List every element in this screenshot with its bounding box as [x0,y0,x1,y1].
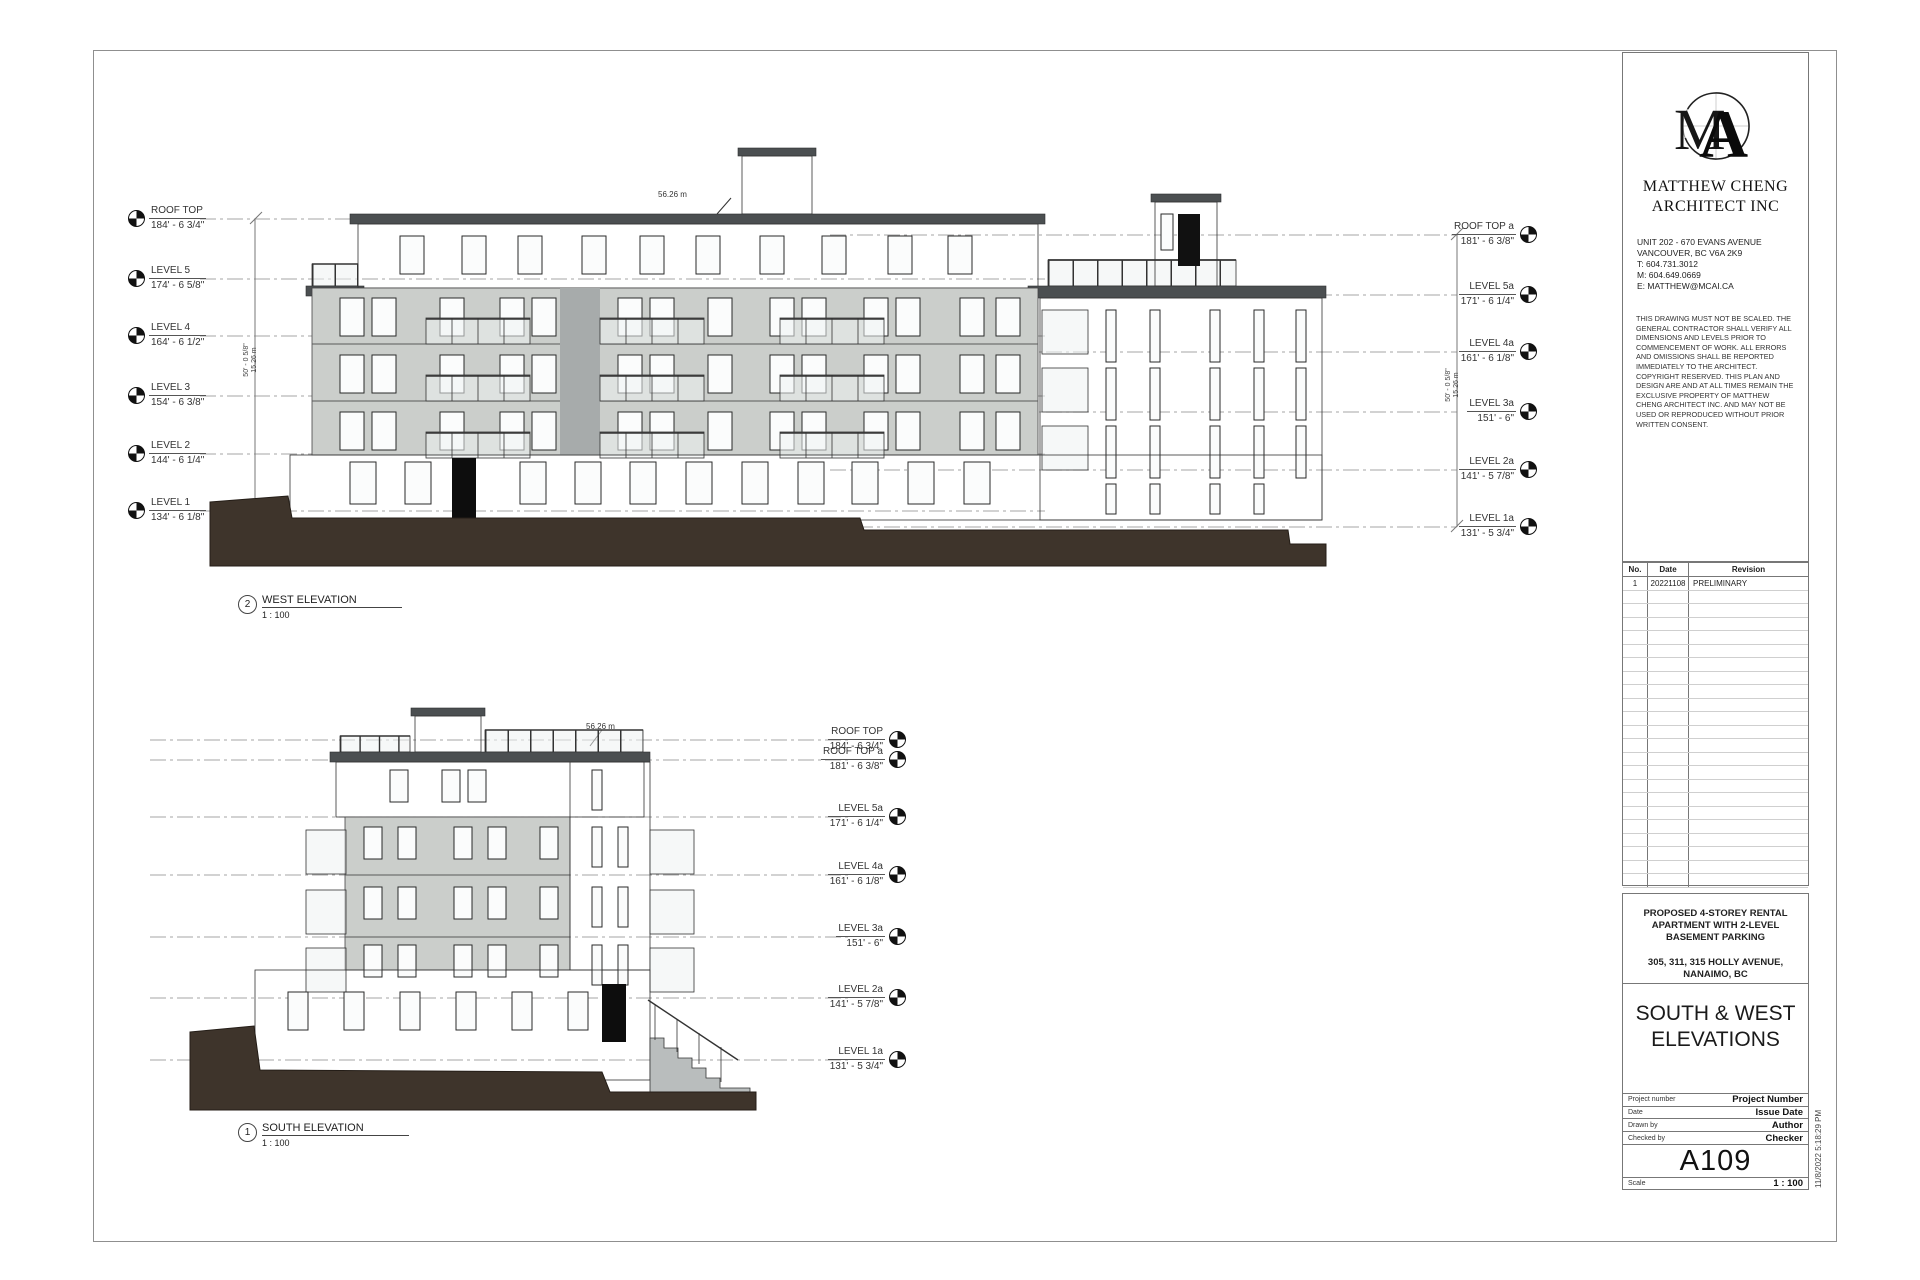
revision-row-empty [1623,685,1808,699]
south-roof-slab [330,752,650,762]
level-elevation: 131' - 5 3/4" [1459,527,1516,540]
south-dark-column [570,762,650,970]
level-name: LEVEL 5a [828,803,885,817]
sheet-title: SOUTH & WEST ELEVATIONS [1623,984,1808,1093]
level-name: ROOF TOP [828,726,885,740]
datum-target-icon [1520,461,1537,478]
firm-address-line: UNIT 202 - 670 EVANS AVENUE [1637,237,1808,248]
south-elevation-viewport-title: 1 SOUTH ELEVATION 1 : 100 [238,1122,409,1148]
level-elevation: 141' - 5 7/8" [828,998,885,1011]
checked-by-row: Checked by Checker [1623,1132,1808,1145]
sheet-number: A109 [1623,1145,1808,1178]
revision-row-empty [1623,874,1808,888]
level-marker-level-4: LEVEL 4164' - 6 1/2" [128,322,206,349]
datum-target-icon [889,751,906,768]
firm-address: UNIT 202 - 670 EVANS AVENUEVANCOUVER, BC… [1637,237,1808,292]
south-rooftop-penthouse [411,708,485,716]
revision-row-empty [1623,604,1808,618]
datum-target-icon [1520,226,1537,243]
firm-logo-icon: M A [1666,83,1766,169]
level-elevation: 171' - 6 1/4" [1459,295,1516,308]
firm-address-line: E: MATTHEW@MCAI.CA [1637,281,1808,292]
level-name: LEVEL 4a [1459,338,1516,352]
datum-target-icon [1520,343,1537,360]
level-marker-level-5a: LEVEL 5a171' - 6 1/4" [738,803,906,830]
west-left-overall-dimension: 50' - 0 5/8" 15.26 m [243,315,259,405]
level-elevation: 164' - 6 1/2" [149,336,206,349]
level-elevation: 151' - 6" [836,937,885,950]
level-elevation: 161' - 6 1/8" [828,875,885,888]
viewport-number-icon: 1 [238,1123,257,1142]
west-rooftop-penthouse [738,148,816,156]
revision-row-empty [1623,807,1808,821]
level-name: LEVEL 3a [1467,398,1516,412]
revision-row-empty [1623,847,1808,861]
revision-row-empty [1623,834,1808,848]
level-marker-level-5a: LEVEL 5a171' - 6 1/4" [1385,281,1537,308]
drawn-by-row: Drawn by Author [1623,1119,1808,1132]
issue-date-row: Date Issue Date [1623,1107,1808,1120]
south-roof-height-annotation: 56.26 m [586,722,615,731]
title-block-project: PROPOSED 4-STOREY RENTAL APARTMENT WITH … [1622,893,1809,1190]
datum-target-icon [1520,286,1537,303]
level-marker-level-1a: LEVEL 1a131' - 5 3/4" [738,1046,906,1073]
level-name: LEVEL 2a [828,984,885,998]
level-elevation: 141' - 5 7/8" [1459,470,1516,483]
revision-row-empty [1623,658,1808,672]
level-name: LEVEL 4a [828,861,885,875]
title-block-firm: M A MATTHEW CHENG ARCHITECT INC UNIT 202… [1622,52,1809,562]
revision-row-empty [1623,591,1808,605]
west-tower-roof-slab [1028,286,1326,298]
level-name: ROOF TOP a [821,746,885,760]
revision-row-empty [1623,712,1808,726]
revision-row-empty [1623,672,1808,686]
level-name: LEVEL 2 [149,440,206,454]
west-elevation-viewport-title: 2 WEST ELEVATION 1 : 100 [238,594,402,620]
level-elevation: 131' - 5 3/4" [828,1060,885,1073]
datum-target-icon [889,989,906,1006]
drawing-sheet: 56.26 m 56.26 m 50' - 0 5/8" 15.26 m 50'… [0,0,1920,1280]
level-name: LEVEL 3a [836,923,885,937]
level-elevation: 134' - 6 1/8" [149,511,206,524]
level-marker-level-1a: LEVEL 1a131' - 5 3/4" [1385,513,1537,540]
revision-row-empty [1623,739,1808,753]
datum-target-icon [1520,403,1537,420]
viewport-scale: 1 : 100 [262,608,402,620]
project-title-section: PROPOSED 4-STOREY RENTAL APARTMENT WITH … [1623,894,1808,984]
west-elevation-drawing [200,140,1470,580]
level-name: LEVEL 1a [828,1046,885,1060]
datum-target-icon [128,270,145,287]
project-title: PROPOSED 4-STOREY RENTAL APARTMENT WITH … [1631,908,1800,944]
level-marker-level-2: LEVEL 2144' - 6 1/4" [128,440,206,467]
datum-target-icon [1520,518,1537,535]
firm-address-line: VANCOUVER, BC V6A 2K9 [1637,248,1808,259]
revision-row-empty [1623,780,1808,794]
firm-disclaimer: THIS DRAWING MUST NOT BE SCALED. THE GEN… [1636,314,1795,429]
level-marker-level-3a: LEVEL 3a151' - 6" [1385,398,1537,425]
level-elevation: 181' - 6 3/8" [821,760,885,773]
west-main-roof-slab [350,214,1045,224]
level-marker-level-5: LEVEL 5174' - 6 5/8" [128,265,206,292]
datum-target-icon [128,210,145,227]
revision-row-empty [1623,820,1808,834]
revision-row-empty [1623,861,1808,875]
firm-address-line: M: 604.649.0669 [1637,270,1808,281]
level-marker-level-2a: LEVEL 2a141' - 5 7/8" [1385,456,1537,483]
revision-row-empty [1623,793,1808,807]
firm-name: MATTHEW CHENG ARCHITECT INC [1623,177,1808,217]
level-marker-level-3a: LEVEL 3a151' - 6" [738,923,906,950]
level-name: LEVEL 5a [1459,281,1516,295]
level-name: LEVEL 2a [1459,456,1516,470]
level-name: LEVEL 1a [1459,513,1516,527]
south-exterior-stair [648,1000,750,1098]
revision-row-empty [1623,766,1808,780]
level-marker-roof-top: ROOF TOP184' - 6 3/4" [128,205,206,232]
level-marker-level-2a: LEVEL 2a141' - 5 7/8" [738,984,906,1011]
revision-row: 120221108PRELIMINARY [1623,577,1808,591]
datum-target-icon [128,387,145,404]
level-marker-roof-top-a: ROOF TOP a181' - 6 3/8" [738,746,906,773]
datum-target-icon [128,327,145,344]
project-number-row: Project number Project Number [1623,1094,1808,1107]
svg-text:A: A [1699,96,1748,169]
west-stucco-band [312,288,1038,455]
datum-target-icon [889,808,906,825]
datum-target-icon [889,1051,906,1068]
print-timestamp: 11/8/2022 5:18:29 PM [1814,1110,1823,1188]
level-marker-level-4a: LEVEL 4a161' - 6 1/8" [738,861,906,888]
level-elevation: 154' - 6 3/8" [149,396,206,409]
level-elevation: 144' - 6 1/4" [149,454,206,467]
level-name: LEVEL 3 [149,382,206,396]
west-stair-penthouse [1151,194,1221,202]
revision-row-empty [1623,631,1808,645]
datum-target-icon [889,928,906,945]
revision-row-empty [1623,645,1808,659]
level-marker-level-3: LEVEL 3154' - 6 3/8" [128,382,206,409]
viewport-title: SOUTH ELEVATION [262,1122,409,1136]
level-marker-level-4a: LEVEL 4a161' - 6 1/8" [1385,338,1537,365]
level-name: LEVEL 4 [149,322,206,336]
level-elevation: 184' - 6 3/4" [149,219,206,232]
level-elevation: 161' - 6 1/8" [1459,352,1516,365]
datum-target-icon [128,445,145,462]
level-marker-roof-top-a: ROOF TOP a181' - 6 3/8" [1385,221,1537,248]
level-elevation: 171' - 6 1/4" [828,817,885,830]
viewport-title: WEST ELEVATION [262,594,402,608]
revision-row-empty [1623,726,1808,740]
level-name: LEVEL 5 [149,265,206,279]
viewport-number-icon: 2 [238,595,257,614]
project-address: 305, 311, 315 HOLLY AVENUE, NANAIMO, BC [1635,957,1796,981]
level-elevation: 181' - 6 3/8" [1452,235,1516,248]
south-building [255,708,750,1098]
level-name: LEVEL 1 [149,497,206,511]
west-roof-height-annotation: 56.26 m [658,190,687,199]
level-name: ROOF TOP a [1452,221,1516,235]
level-marker-level-1: LEVEL 1134' - 6 1/8" [128,497,206,524]
revision-row-empty [1623,753,1808,767]
scale-row: Scale 1 : 100 [1623,1178,1808,1189]
level-elevation: 151' - 6" [1467,412,1516,425]
datum-target-icon [889,866,906,883]
revision-row-empty [1623,618,1808,632]
level-name: ROOF TOP [149,205,206,219]
revision-table-header: No.DateRevision [1623,563,1808,577]
level-elevation: 174' - 6 5/8" [149,279,206,292]
datum-target-icon [128,502,145,519]
revision-row-empty [1623,699,1808,713]
revision-table: No.DateRevision120221108PRELIMINARY [1622,562,1809,886]
west-building [290,148,1326,520]
viewport-scale: 1 : 100 [262,1136,409,1148]
firm-address-line: T: 604.731.3012 [1637,259,1808,270]
